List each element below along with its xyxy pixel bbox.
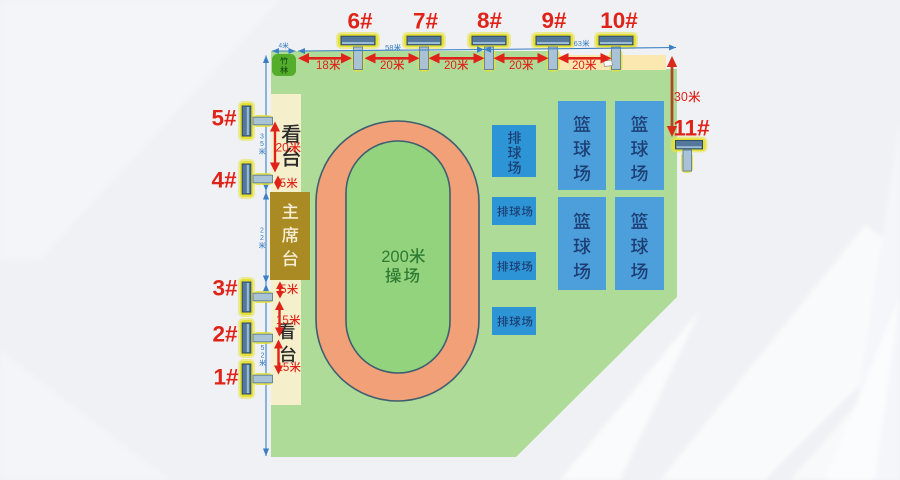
svg-text:2: 2 xyxy=(260,228,264,235)
svg-text:11#: 11# xyxy=(673,116,710,141)
svg-text:2#: 2# xyxy=(212,322,238,347)
svg-text:5: 5 xyxy=(280,284,286,296)
svg-text:63: 63 xyxy=(574,39,582,48)
svg-text:4: 4 xyxy=(279,43,283,50)
svg-text:9#: 9# xyxy=(541,8,567,33)
svg-text:3#: 3# xyxy=(212,276,238,301)
svg-text:10#: 10# xyxy=(600,8,638,33)
svg-text:20: 20 xyxy=(380,60,393,72)
svg-text:20: 20 xyxy=(509,60,522,72)
svg-text:15: 15 xyxy=(276,362,289,374)
svg-text:5: 5 xyxy=(280,178,286,190)
svg-text:5#: 5# xyxy=(211,106,237,131)
svg-text:8#: 8# xyxy=(477,8,503,33)
svg-text:20: 20 xyxy=(275,141,289,155)
svg-text:20: 20 xyxy=(444,60,457,72)
svg-text:30: 30 xyxy=(674,90,688,104)
svg-text:58: 58 xyxy=(385,43,393,52)
svg-text:2: 2 xyxy=(260,235,264,242)
svg-text:7#: 7# xyxy=(413,9,439,34)
svg-text:15: 15 xyxy=(276,315,289,327)
svg-text:5: 5 xyxy=(261,345,265,352)
svg-text:6#: 6# xyxy=(347,9,373,34)
svg-text:1#: 1# xyxy=(213,365,239,390)
svg-text:200: 200 xyxy=(381,248,409,266)
svg-text:2: 2 xyxy=(261,353,265,360)
svg-text:18: 18 xyxy=(316,60,329,72)
svg-text:3: 3 xyxy=(260,134,264,141)
svg-text:4#: 4# xyxy=(211,168,237,193)
svg-text:5: 5 xyxy=(260,141,264,148)
svg-text:20: 20 xyxy=(572,60,585,72)
